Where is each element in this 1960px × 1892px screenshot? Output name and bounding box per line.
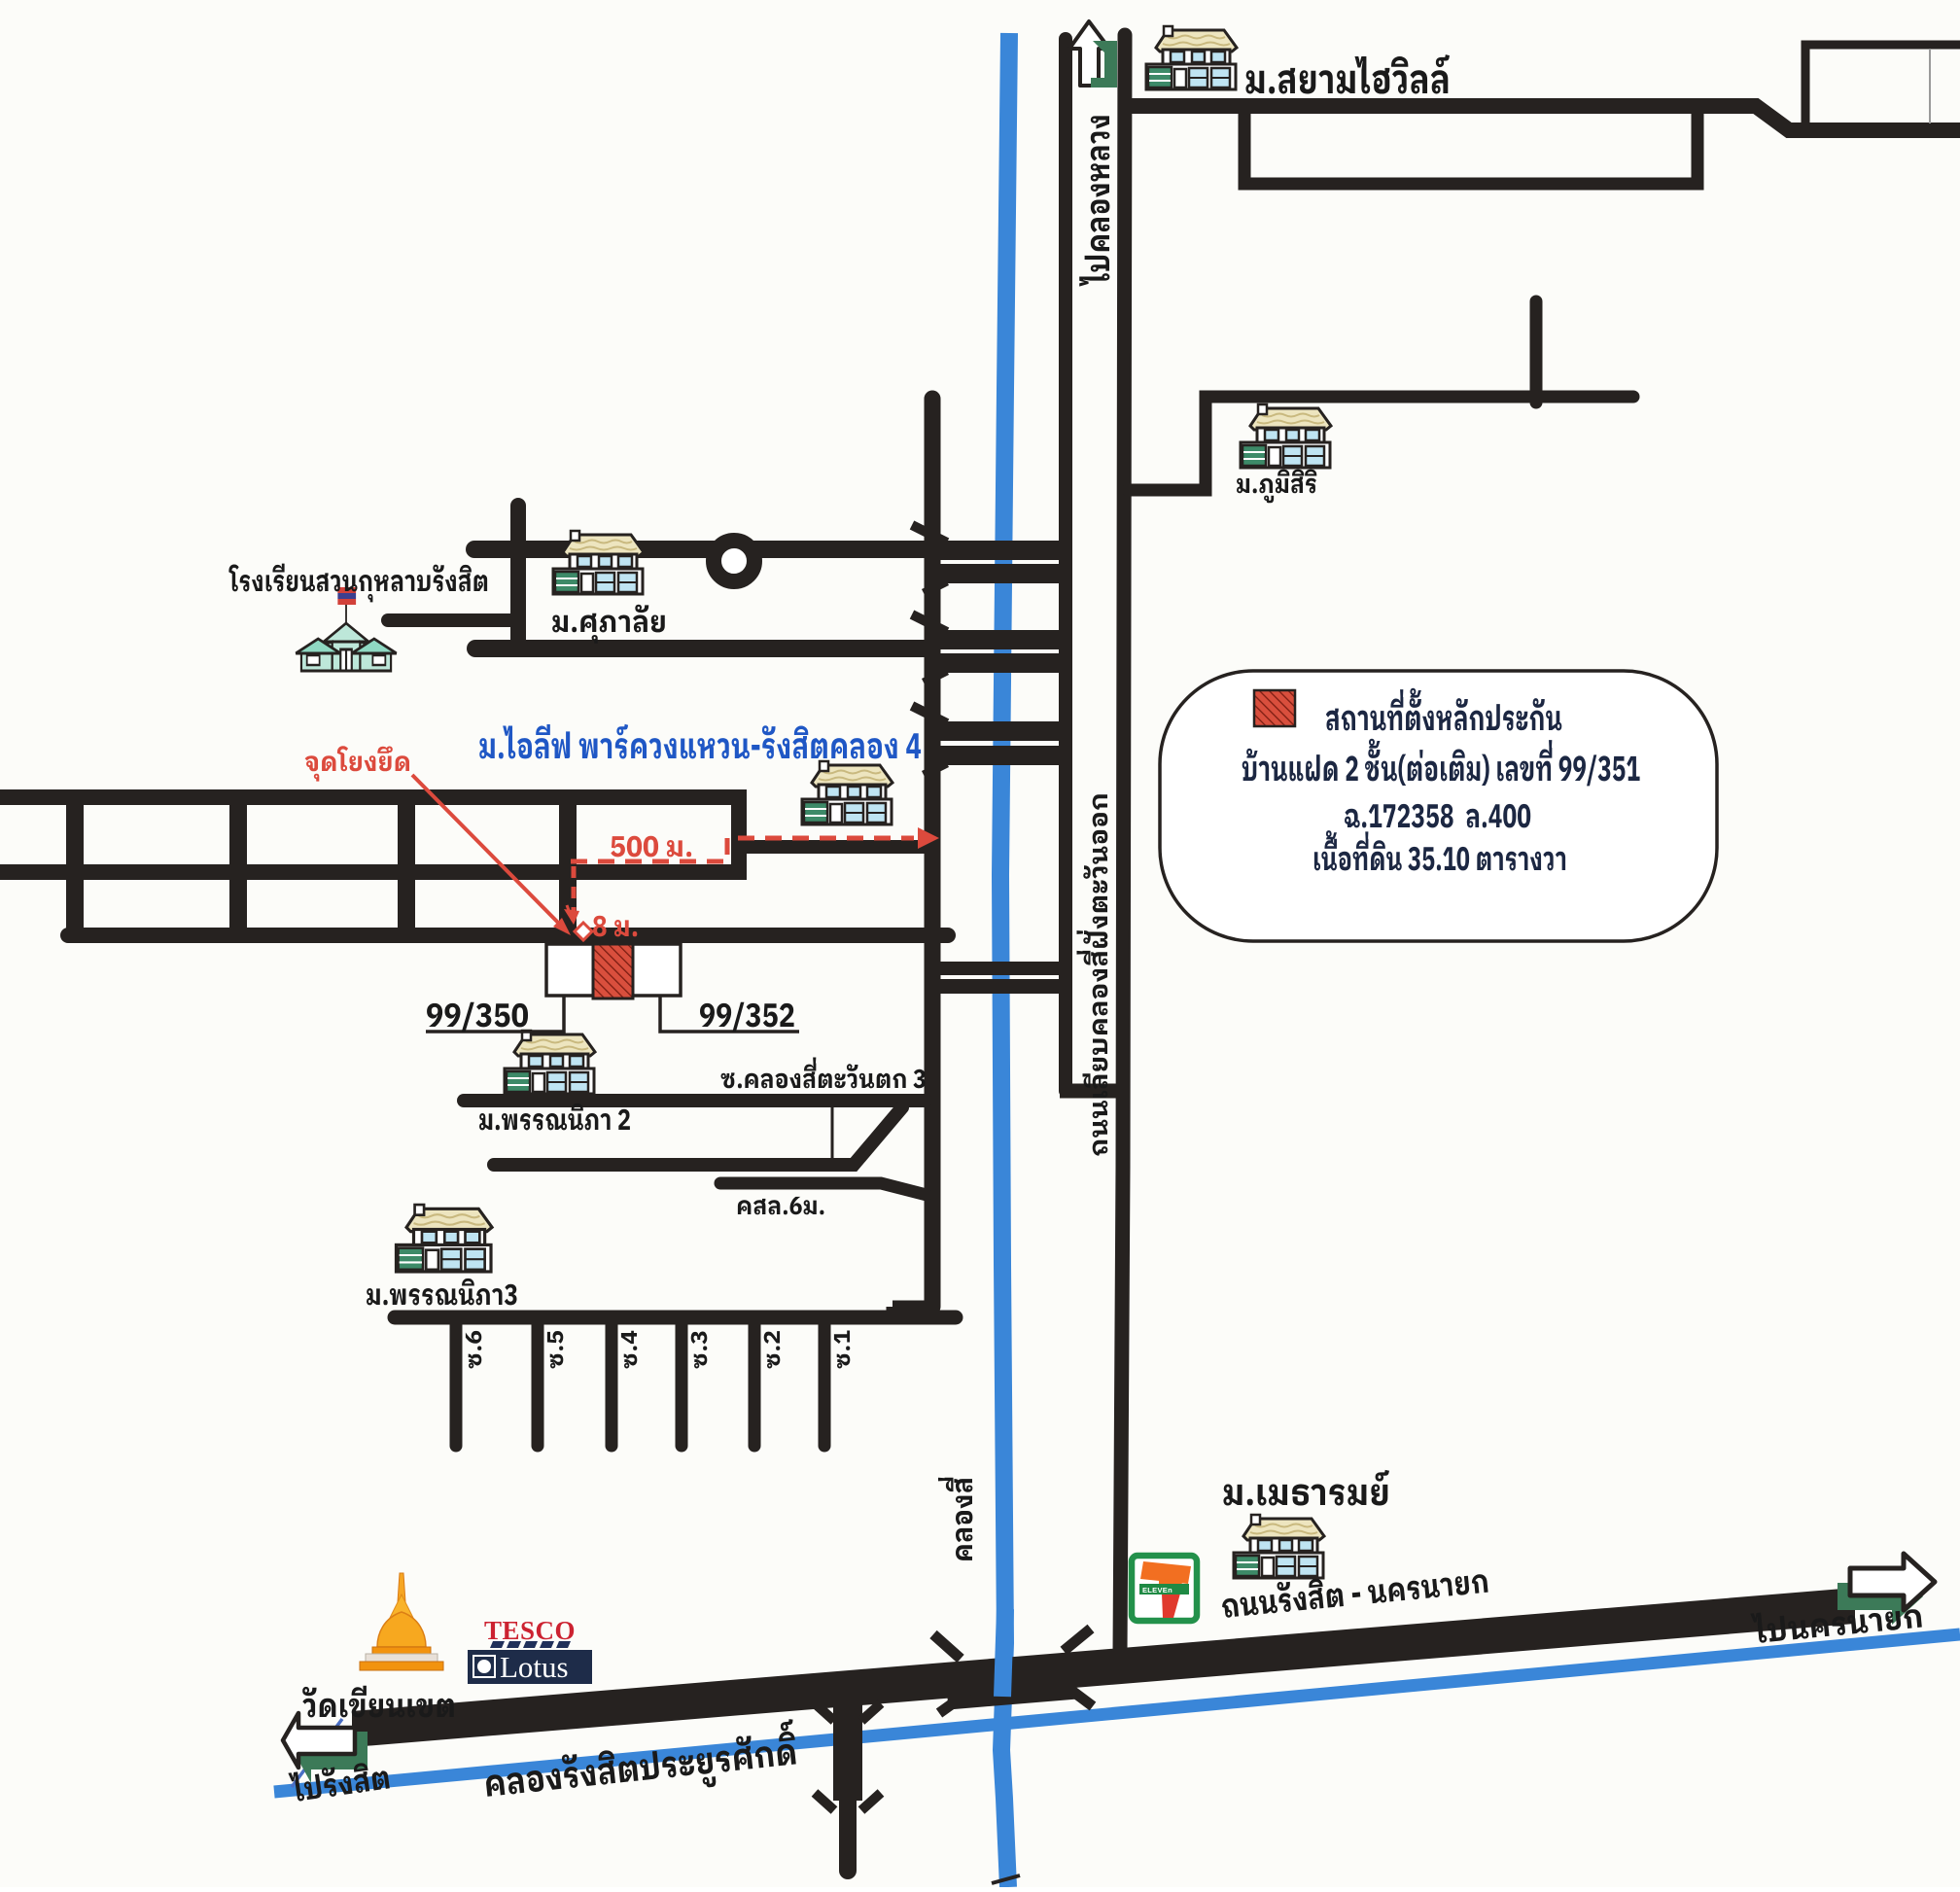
svg-text:ELEVEn: ELEVEn (1142, 1586, 1172, 1594)
svg-text:TESCO: TESCO (484, 1616, 576, 1645)
svg-text:Lotus: Lotus (500, 1650, 569, 1684)
